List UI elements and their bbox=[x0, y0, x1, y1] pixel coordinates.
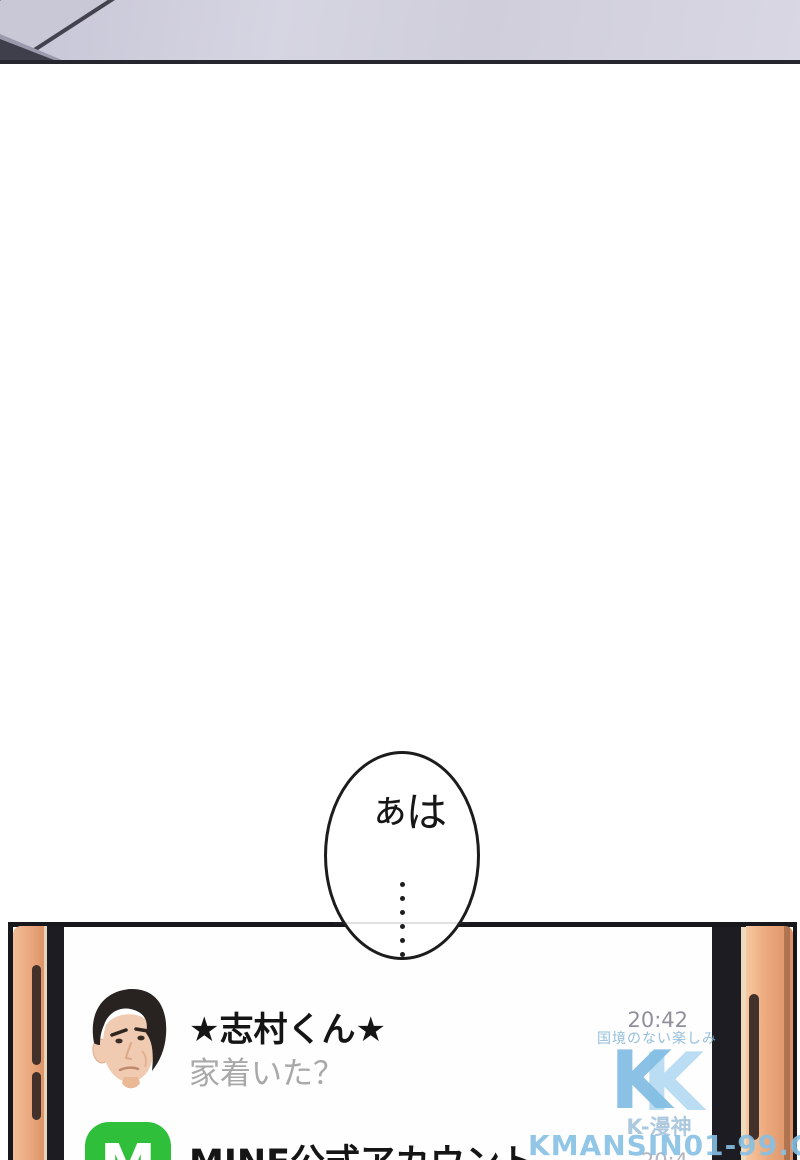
sigh-text: はぁ bbox=[360, 790, 444, 870]
ellipsis-dots bbox=[400, 882, 405, 957]
volume-button-icon bbox=[32, 965, 41, 1065]
man-portrait-icon bbox=[86, 985, 172, 1091]
chat-name: ★志村くん★ bbox=[189, 1002, 386, 1051]
phone-right-outline bbox=[793, 922, 797, 1160]
chat-preview: 家着いた？ bbox=[189, 1048, 344, 1093]
mine-official-account-icon: M bbox=[85, 1122, 171, 1160]
chat-time: 20:4 bbox=[588, 1149, 688, 1160]
phone-right-shading bbox=[784, 926, 790, 1160]
avatar bbox=[86, 985, 172, 1091]
chat-time: 20:42 bbox=[588, 1008, 688, 1032]
phone-right-bezel bbox=[712, 927, 741, 1160]
previous-panel-artwork bbox=[0, 0, 800, 64]
phone-left-bezel bbox=[47, 926, 64, 1160]
panel-line-showthrough bbox=[333, 922, 471, 924]
account-icon-letter: M bbox=[100, 1138, 156, 1160]
manga-page: はぁ bbox=[0, 0, 800, 1160]
side-button-icon bbox=[32, 1072, 41, 1120]
speech-bubble: はぁ bbox=[324, 751, 480, 960]
chat-name: MINE公式アカウント bbox=[189, 1134, 535, 1160]
power-button-icon bbox=[749, 994, 759, 1140]
